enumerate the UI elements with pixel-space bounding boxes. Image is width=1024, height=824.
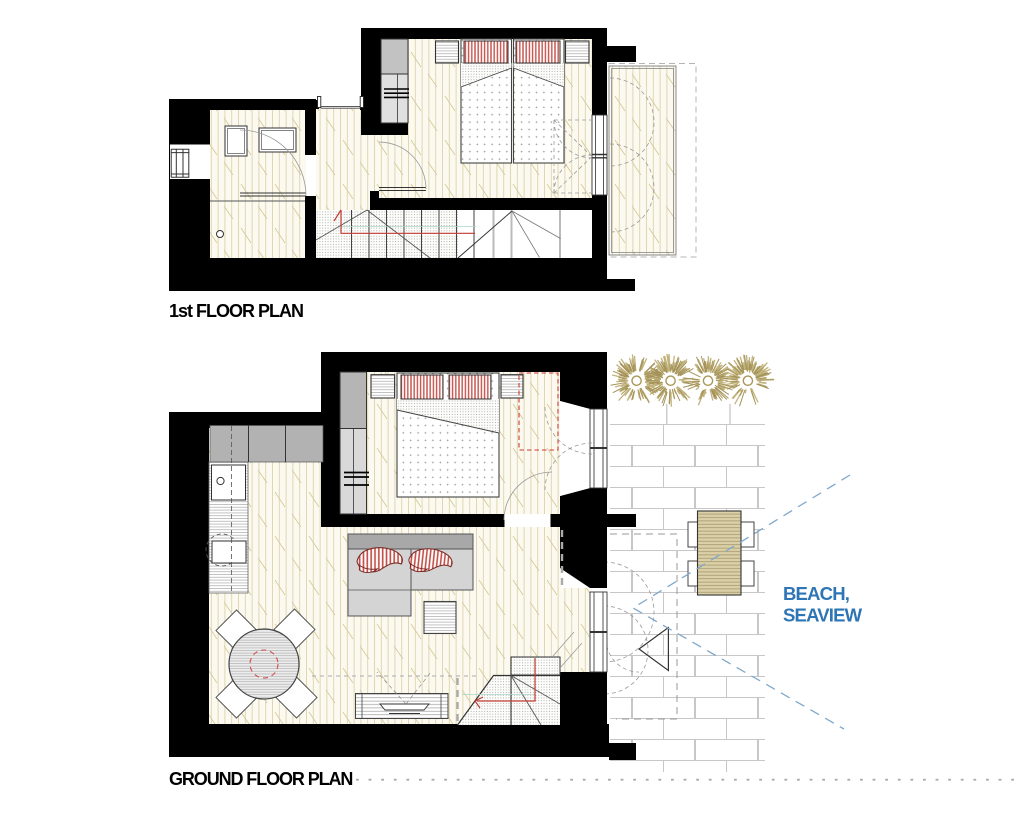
- svg-text:GROUND FLOOR PLAN: GROUND FLOOR PLAN: [169, 769, 352, 789]
- svg-text:SEAVIEW: SEAVIEW: [783, 605, 863, 626]
- svg-text:BEACH,: BEACH,: [783, 583, 849, 604]
- svg-text:1st FLOOR PLAN: 1st FLOOR PLAN: [169, 301, 303, 321]
